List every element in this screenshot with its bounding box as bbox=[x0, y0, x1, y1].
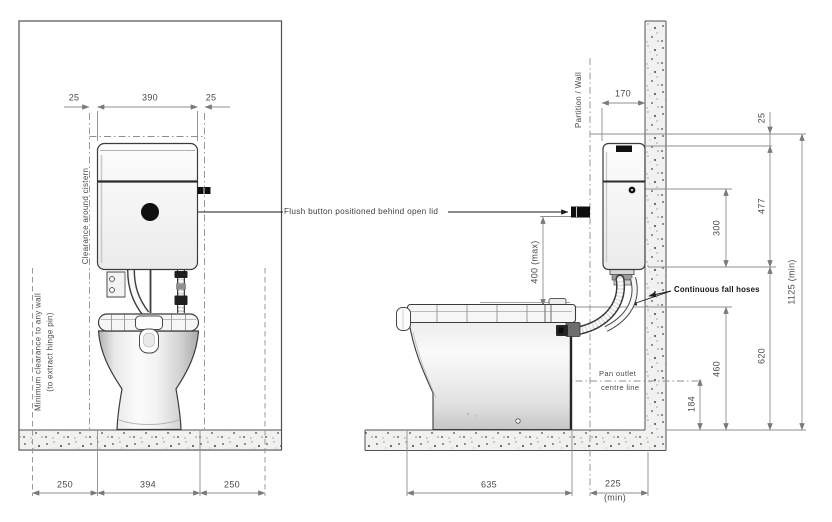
dim-top-left: 25 bbox=[69, 94, 80, 103]
side-view-floor bbox=[365, 430, 666, 451]
dim-460: 460 bbox=[713, 361, 722, 377]
dim-477: 477 bbox=[758, 198, 767, 214]
dim-top-mid: 390 bbox=[142, 94, 158, 103]
flush-button-panel bbox=[571, 207, 590, 218]
clearance-cistern-label: Clearance around cistern bbox=[82, 168, 90, 265]
dim-top-right: 25 bbox=[206, 94, 217, 103]
dim-620: 620 bbox=[758, 348, 767, 364]
dim-bottom-mid: 394 bbox=[140, 481, 156, 490]
dim-bottom-left: 250 bbox=[57, 481, 73, 490]
dim-bottom-right: 250 bbox=[224, 481, 240, 490]
leader-lines bbox=[164, 212, 671, 305]
dim-1125-min: 1125 (min) bbox=[788, 259, 797, 304]
partition-wall-label: Partition / Wall bbox=[575, 72, 583, 128]
dim-635: 635 bbox=[481, 481, 497, 490]
dim-225: 225 bbox=[605, 480, 621, 489]
side-view-wall bbox=[645, 21, 666, 451]
min-clearance-line1: Minimum clearance to any wall bbox=[33, 293, 45, 411]
technical-drawing-canvas: 25 390 25 Clearance around cistern Minim… bbox=[0, 0, 832, 522]
min-clearance-label: Minimum clearance to any wall (to extrac… bbox=[33, 293, 56, 411]
flush-button-front bbox=[141, 203, 159, 221]
dim-225-min-note: (min) bbox=[604, 494, 626, 503]
front-view-toilet bbox=[98, 144, 211, 430]
dim-184: 184 bbox=[688, 396, 697, 412]
dim-300: 300 bbox=[713, 220, 722, 236]
pan-outlet-line2: centre line bbox=[599, 384, 641, 392]
dim-400-max: 400 (max) bbox=[531, 240, 540, 283]
continuous-fall-hoses-label: Continuous fall hoses bbox=[674, 286, 760, 294]
dim-25-side: 25 bbox=[758, 113, 767, 124]
drawing-linework bbox=[0, 0, 832, 522]
dim-170: 170 bbox=[615, 90, 631, 99]
flush-button-note: Flush button positioned behind open lid bbox=[284, 208, 438, 216]
pan-outlet-line1: Pan outlet bbox=[597, 370, 638, 378]
min-clearance-line2: (to extract hinge pin) bbox=[44, 293, 56, 411]
